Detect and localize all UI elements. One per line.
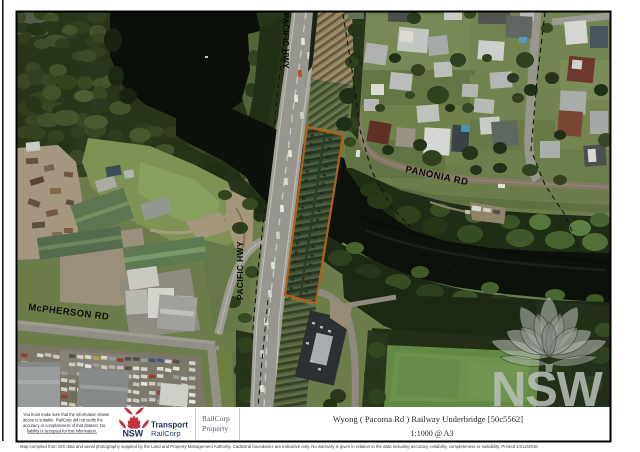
svg-text:PACIFIC HWY: PACIFIC HWY (281, 13, 290, 69)
svg-text:Map compiled from GIS data and: Map compiled from GIS data and aerial ph… (20, 444, 538, 449)
svg-text:NSW: NSW (123, 429, 144, 439)
svg-text:1:1000 @ A3: 1:1000 @ A3 (411, 429, 454, 438)
svg-text:RailCorp: RailCorp (202, 414, 230, 423)
svg-text:Property: Property (202, 424, 228, 433)
svg-text:accuracy or completeness of th: accuracy or completeness of that dataset… (23, 423, 106, 428)
svg-text:RailCorp: RailCorp (151, 429, 181, 438)
svg-text:PACIFIC HWY: PACIFIC HWY (235, 241, 245, 300)
svg-text:You must make sure that the in: You must make sure that the information … (23, 412, 110, 417)
svg-text:Wyong ( Pacoma Rd ) Railway Un: Wyong ( Pacoma Rd ) Railway Underbridge … (333, 414, 523, 424)
svg-text:liability is accepted for this: liability is accepted for this informati… (27, 429, 97, 434)
svg-text:above is suitable. RailCorp di: above is suitable. RailCorp did not veri… (23, 418, 104, 423)
